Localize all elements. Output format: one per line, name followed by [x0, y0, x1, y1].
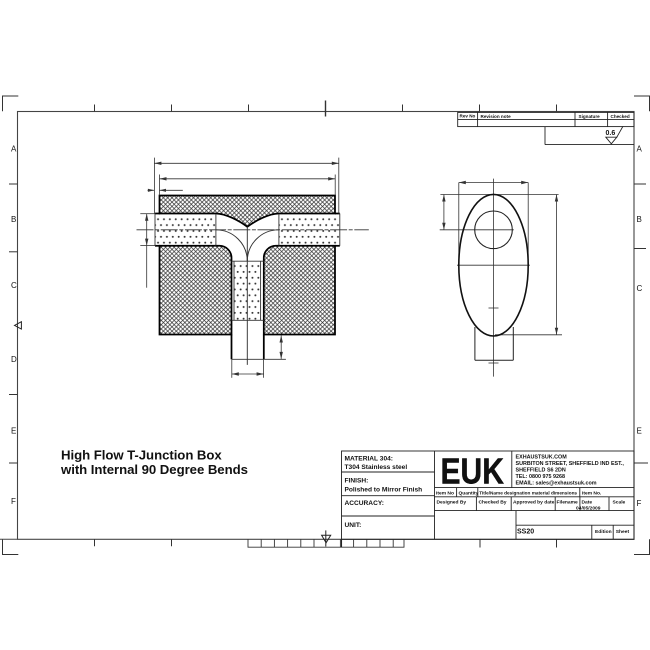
- svg-text:E: E: [637, 427, 642, 436]
- svg-text:SS20: SS20: [517, 529, 534, 536]
- svg-text:Sheet: Sheet: [616, 529, 630, 535]
- svg-text:B: B: [637, 215, 642, 224]
- svg-text:Edition: Edition: [595, 529, 612, 535]
- svg-text:B: B: [11, 215, 16, 224]
- svg-text:04/05/2009: 04/05/2009: [576, 506, 601, 512]
- svg-text:Designed By: Designed By: [437, 500, 467, 506]
- svg-text:0.6: 0.6: [606, 130, 616, 137]
- svg-text:EMAIL: sales@exhaustsuk.com: EMAIL: sales@exhaustsuk.com: [516, 480, 597, 486]
- svg-text:FINISH:: FINISH:: [345, 478, 369, 485]
- svg-text:Quantity: Quantity: [459, 491, 479, 497]
- svg-text:C: C: [11, 281, 17, 290]
- svg-text:TEL: 0800 975 9268: TEL: 0800 975 9268: [516, 474, 565, 480]
- svg-text:Item No: Item No: [436, 491, 454, 497]
- svg-text:High Flow T-Junction Box: High Flow T-Junction Box: [61, 448, 222, 463]
- svg-text:EUK: EUK: [441, 451, 505, 492]
- svg-text:Item No.: Item No.: [582, 491, 602, 497]
- svg-text:ACCURACY:: ACCURACY:: [345, 500, 384, 507]
- svg-text:Checked By: Checked By: [479, 500, 507, 506]
- svg-text:Polished to Mirror Finish: Polished to Mirror Finish: [345, 487, 423, 494]
- svg-text:Scale: Scale: [613, 500, 626, 506]
- svg-text:T304 Stainless steel: T304 Stainless steel: [345, 464, 408, 471]
- svg-text:Approved by date: Approved by date: [513, 500, 555, 506]
- svg-text:Signature: Signature: [579, 114, 601, 119]
- svg-text:F: F: [637, 499, 642, 508]
- svg-text:Revision note: Revision note: [481, 114, 512, 119]
- svg-text:Checked: Checked: [611, 114, 630, 119]
- svg-text:Rev No: Rev No: [460, 114, 476, 119]
- svg-text:with Internal 90 Degree Bends: with Internal 90 Degree Bends: [60, 462, 248, 477]
- svg-text:A: A: [637, 144, 643, 153]
- svg-text:UNIT:: UNIT:: [345, 522, 362, 529]
- svg-text:F: F: [11, 497, 16, 506]
- svg-text:A: A: [11, 144, 17, 153]
- svg-text:D: D: [11, 355, 17, 364]
- svg-text:EXHAUSTSUK.COM: EXHAUSTSUK.COM: [516, 454, 568, 460]
- svg-text:SHEFFIELD S6 2DN: SHEFFIELD S6 2DN: [516, 467, 566, 473]
- svg-text:C: C: [637, 284, 643, 293]
- svg-text:SURBITON STREET, SHEFFIELD IND: SURBITON STREET, SHEFFIELD IND EST.,: [516, 461, 625, 467]
- svg-text:E: E: [11, 427, 16, 436]
- svg-text:Filename: Filename: [557, 500, 578, 506]
- svg-text:Date: Date: [582, 500, 593, 506]
- svg-text:Title/Name designation materia: Title/Name designation material dimensio…: [479, 491, 577, 496]
- svg-text:MATERIAL 304:: MATERIAL 304:: [345, 456, 393, 463]
